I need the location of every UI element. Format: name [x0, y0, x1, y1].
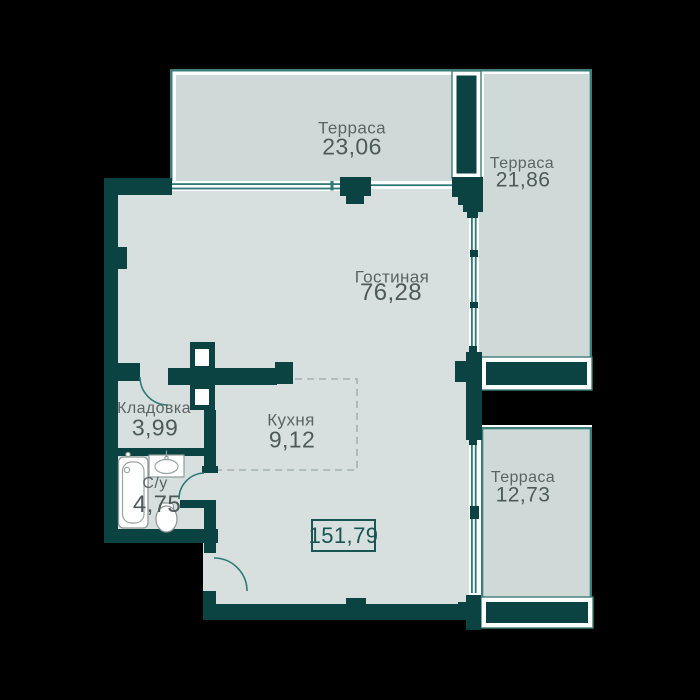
floor-plan-drawing — [0, 0, 700, 700]
parapet-bar-bottom — [481, 597, 593, 628]
living-room-area: 76,28 — [360, 281, 422, 305]
storage-area: 3,99 — [132, 417, 178, 440]
window-right-upper — [469, 216, 479, 354]
terrace-pillar — [452, 71, 481, 178]
floor-plan: Терраса 23,06 Терраса 21,86 Гостиная 76,… — [0, 0, 700, 700]
kitchen-area: 9,12 — [269, 429, 315, 452]
bathroom-area: 4,75 — [133, 493, 181, 517]
terrace-top-floor — [170, 69, 454, 185]
total-area-value: 151,79 — [309, 523, 379, 549]
bathroom-label: С/у — [142, 476, 167, 492]
parapet-bar-middle — [481, 357, 592, 390]
terrace-top-area: 23,06 — [322, 136, 382, 159]
window-right-lower — [469, 441, 479, 595]
terrace-bottom-floor — [477, 425, 592, 599]
window-top-right — [371, 181, 452, 189]
terrace-right-floor — [477, 69, 592, 360]
total-area-badge: 151,79 — [311, 519, 376, 552]
terrace-bottom-area: 12,73 — [496, 485, 551, 506]
window-top-left — [168, 181, 343, 191]
sink — [149, 451, 184, 478]
terrace-right-area: 21,86 — [496, 170, 551, 191]
